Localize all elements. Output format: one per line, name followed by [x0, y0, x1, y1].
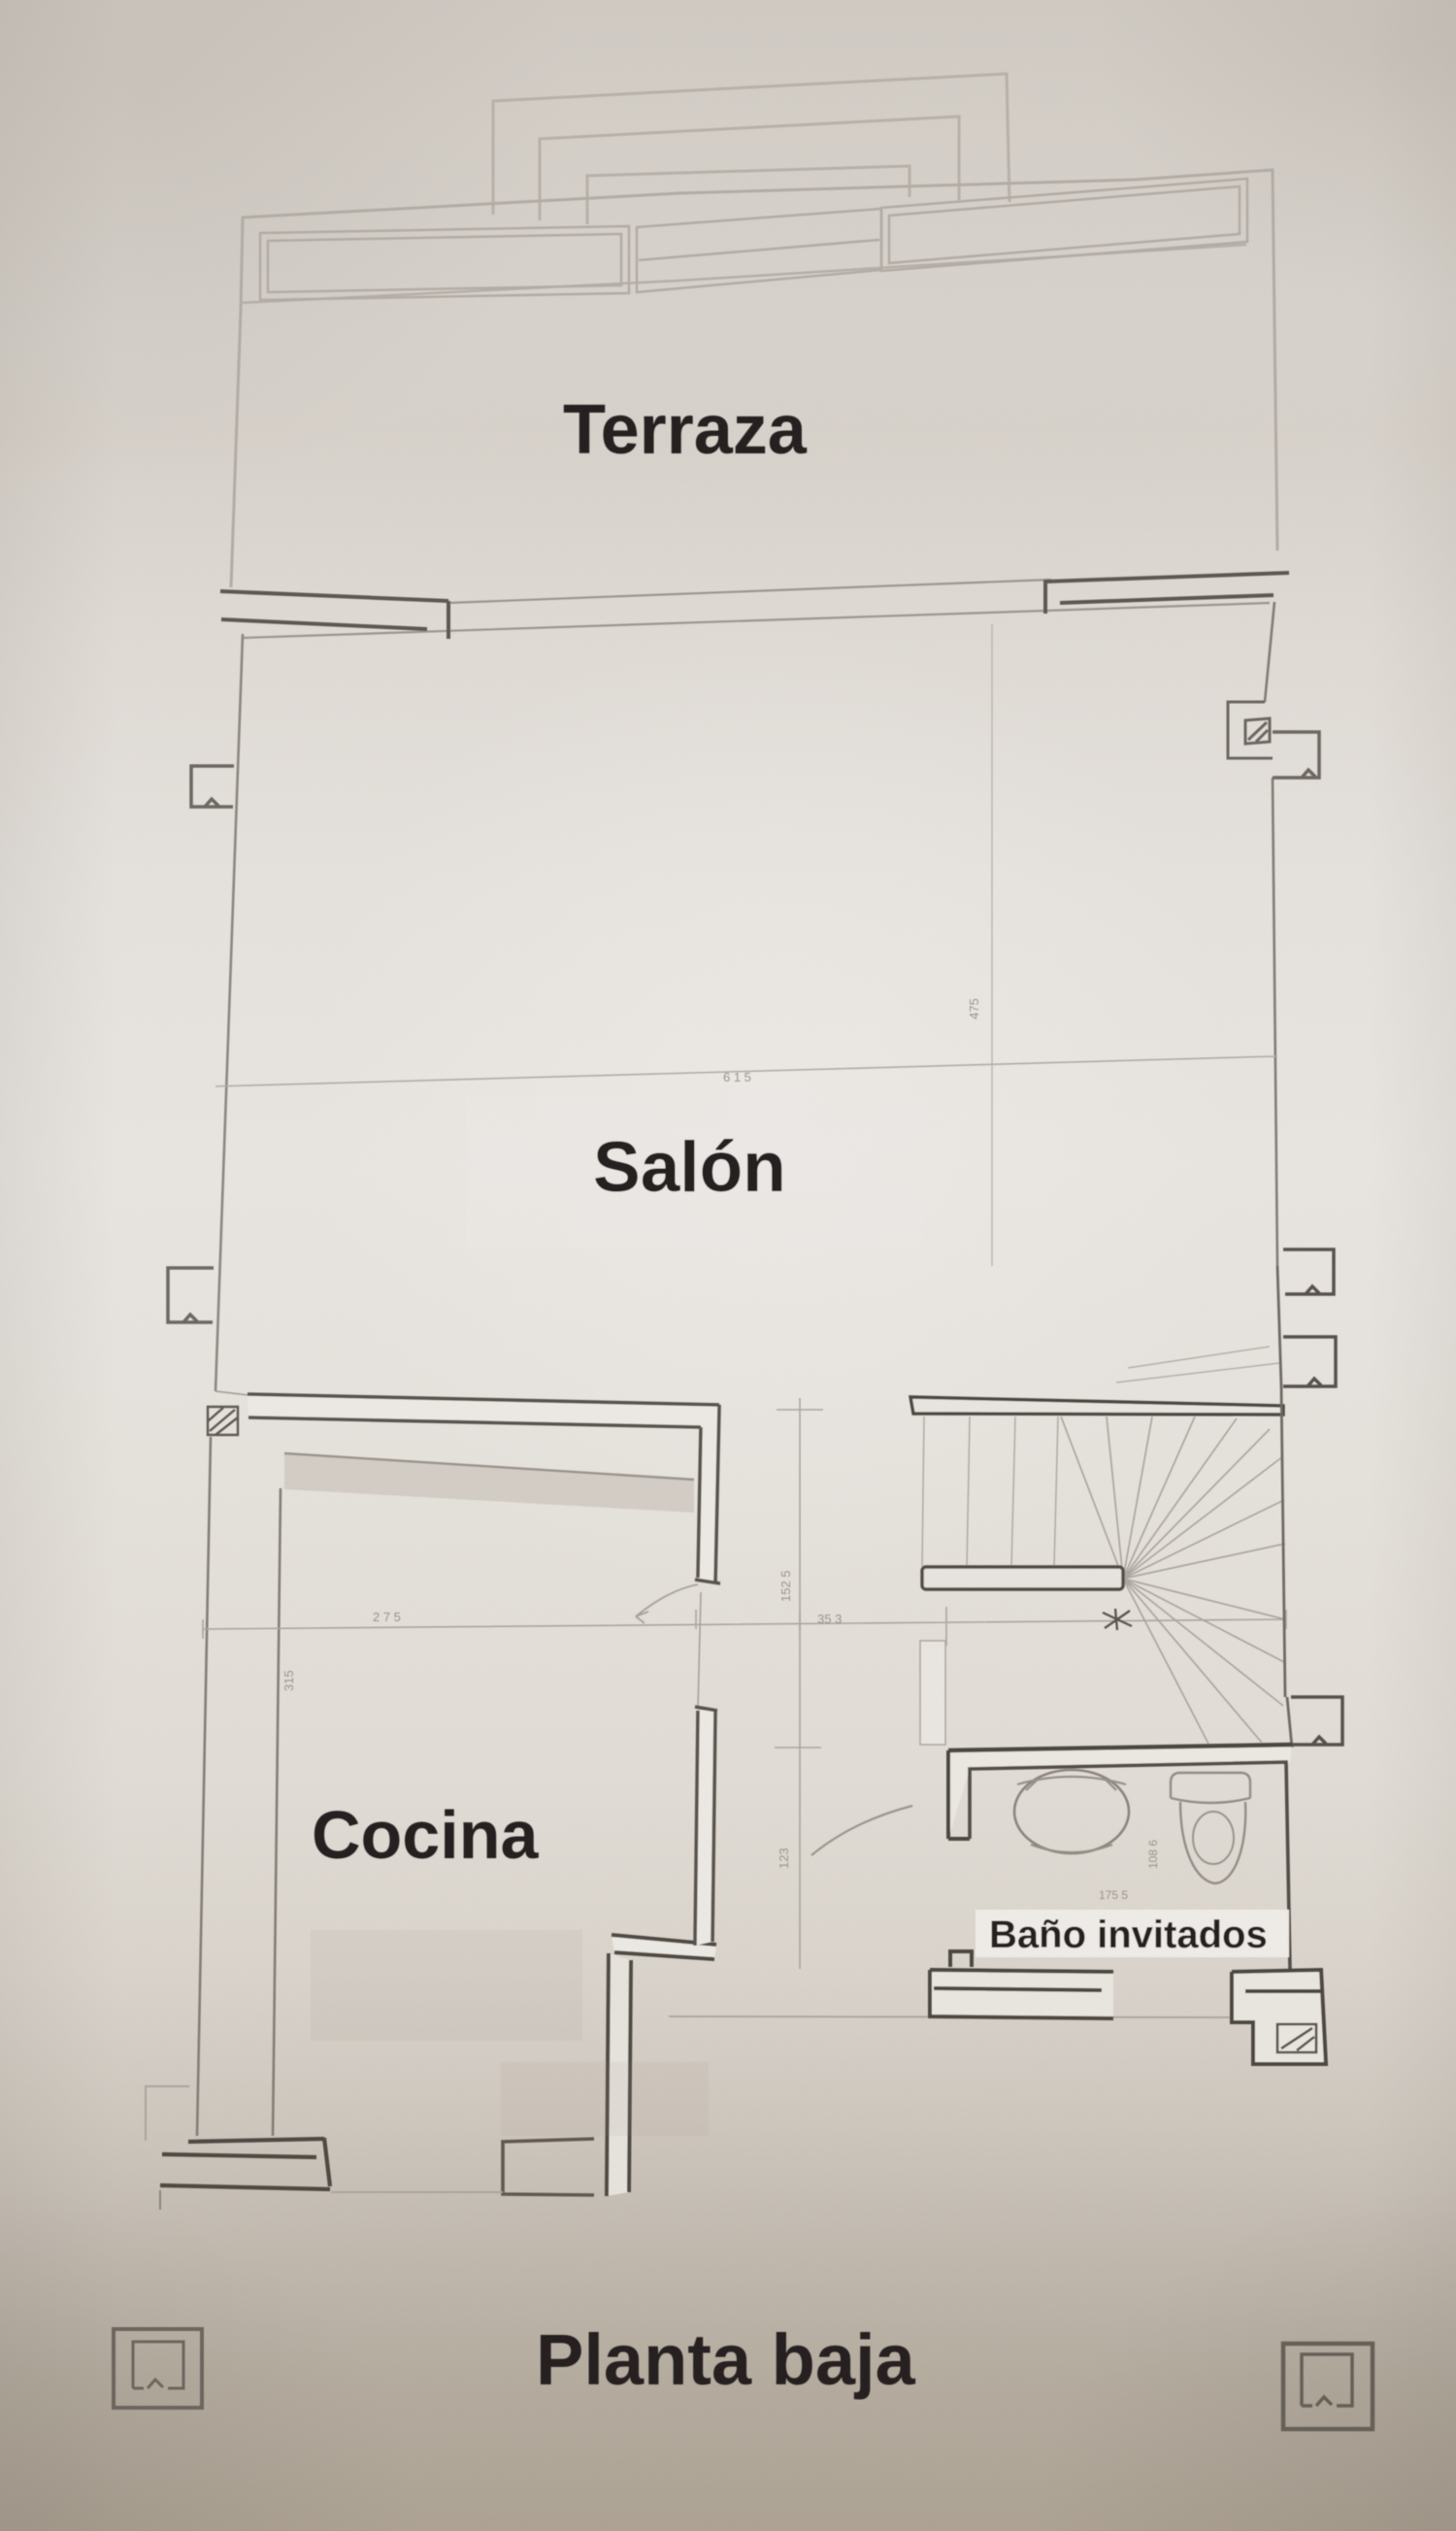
svg-text:35 3: 35 3: [817, 1612, 842, 1626]
svg-text:Terraza: Terraza: [563, 391, 808, 469]
svg-text:123: 123: [777, 1848, 791, 1869]
svg-text:Salón: Salón: [593, 1128, 786, 1207]
svg-text:2 7 5: 2 7 5: [373, 1610, 401, 1624]
svg-text:475: 475: [967, 998, 981, 1019]
svg-text:Cocina: Cocina: [312, 1797, 539, 1873]
svg-text:152 5: 152 5: [778, 1570, 793, 1602]
svg-text:6 1 5: 6 1 5: [723, 1070, 751, 1084]
svg-text:Planta baja: Planta baja: [536, 2319, 916, 2400]
svg-text:Baño invitados: Baño invitados: [989, 1914, 1268, 1956]
svg-text:175 5: 175 5: [1099, 1888, 1128, 1902]
svg-text:108 6: 108 6: [1146, 1840, 1160, 1869]
svg-text:315: 315: [281, 1670, 296, 1691]
